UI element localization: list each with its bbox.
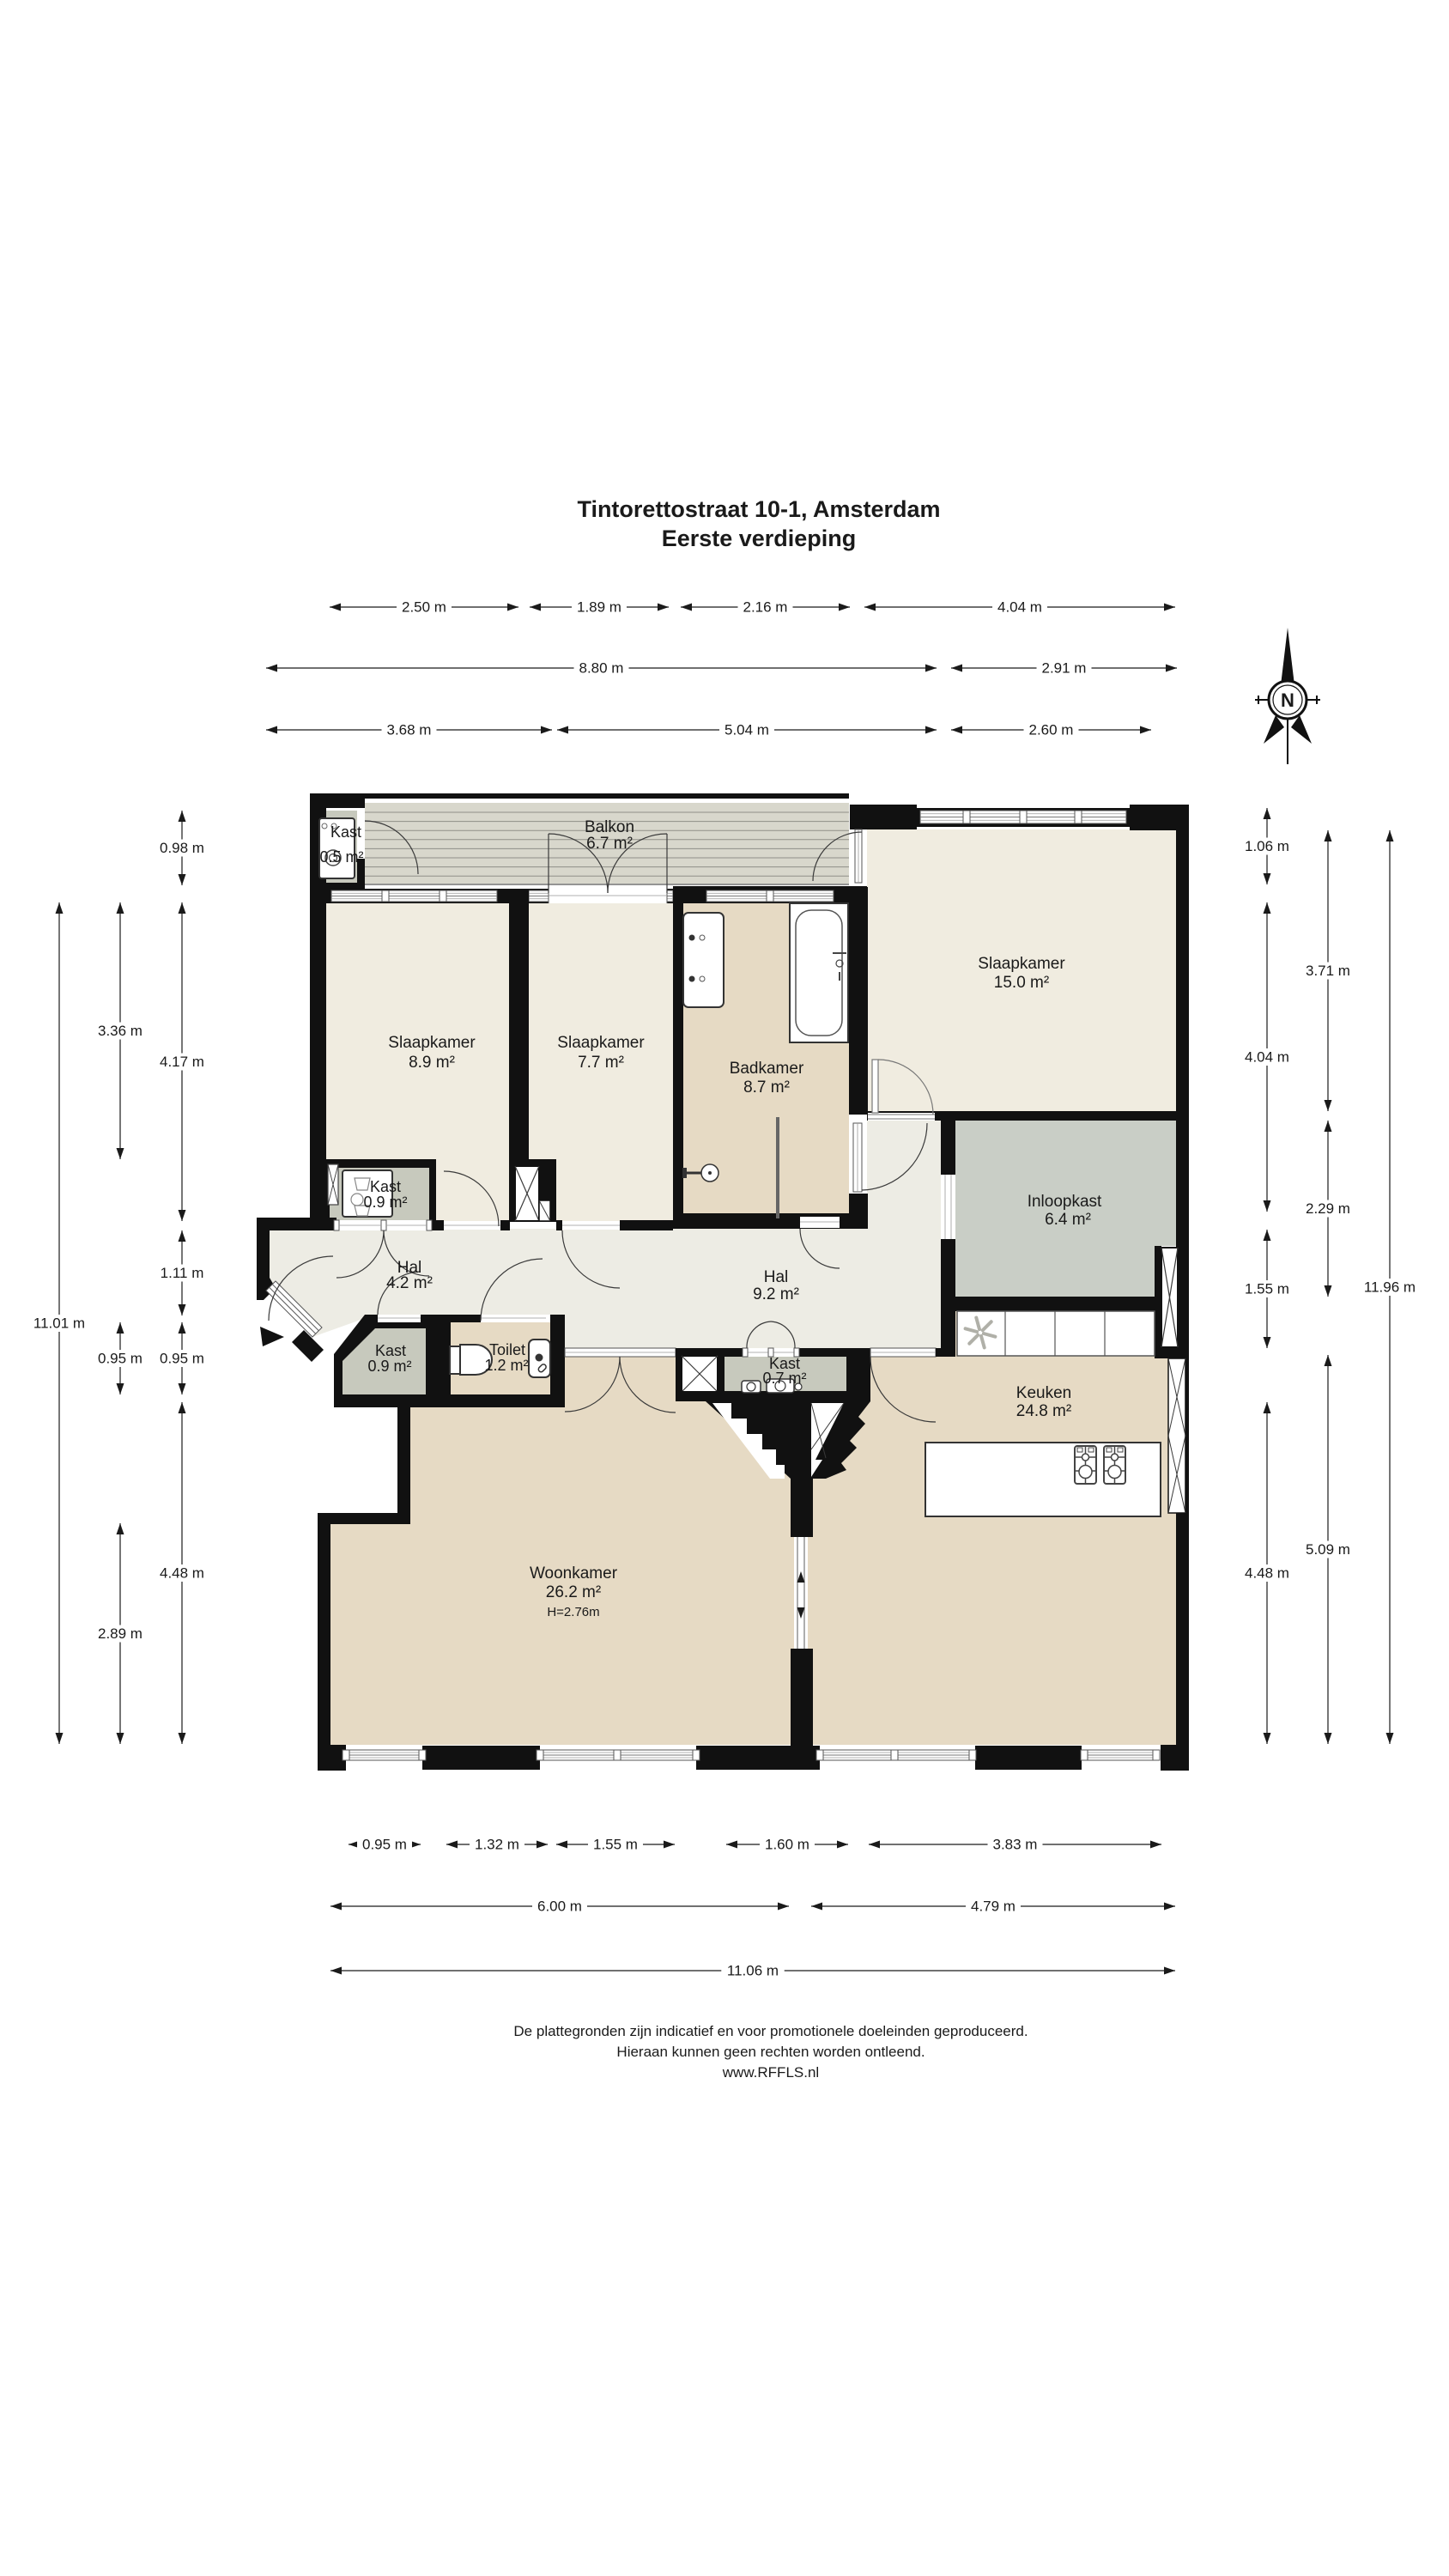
svg-text:0.98 m: 0.98 m (160, 840, 204, 856)
svg-text:www.RFFLS.nl: www.RFFLS.nl (722, 2064, 819, 2081)
svg-text:4.48 m: 4.48 m (160, 1565, 204, 1582)
svg-text:0.9 m²: 0.9 m² (363, 1194, 407, 1211)
svg-text:6.00 m: 6.00 m (537, 1899, 582, 1915)
svg-text:Slaapkamer: Slaapkamer (388, 1034, 476, 1052)
svg-text:0.7 m²: 0.7 m² (762, 1370, 806, 1387)
svg-text:Hal: Hal (764, 1268, 789, 1286)
svg-text:3.36 m: 3.36 m (98, 1023, 142, 1039)
svg-text:4.17 m: 4.17 m (160, 1054, 204, 1070)
svg-text:2.16 m: 2.16 m (743, 599, 788, 616)
svg-text:1.89 m: 1.89 m (577, 599, 621, 616)
svg-text:2.91 m: 2.91 m (1042, 660, 1087, 677)
svg-text:8.9 m²: 8.9 m² (409, 1054, 455, 1072)
svg-text:1.60 m: 1.60 m (765, 1837, 809, 1853)
svg-text:0.95 m: 0.95 m (160, 1351, 204, 1367)
svg-text:9.2 m²: 9.2 m² (753, 1285, 799, 1303)
svg-text:6.4 m²: 6.4 m² (1045, 1211, 1091, 1229)
svg-text:Kast: Kast (375, 1342, 406, 1359)
svg-text:5.04 m: 5.04 m (724, 722, 769, 738)
svg-text:Woonkamer: Woonkamer (530, 1564, 618, 1583)
svg-text:11.96 m: 11.96 m (1364, 1279, 1416, 1296)
svg-text:24.8 m²: 24.8 m² (1016, 1402, 1071, 1420)
svg-text:1.11 m: 1.11 m (161, 1265, 204, 1281)
svg-text:0.95 m: 0.95 m (362, 1837, 407, 1853)
svg-text:5.09 m: 5.09 m (1306, 1541, 1350, 1558)
svg-text:1.55 m: 1.55 m (1245, 1281, 1289, 1297)
svg-text:Kast: Kast (370, 1178, 401, 1195)
svg-text:Inloopkast: Inloopkast (1028, 1193, 1102, 1211)
svg-text:Kast: Kast (330, 823, 361, 841)
svg-text:Eerste verdieping: Eerste verdieping (662, 526, 857, 551)
svg-text:3.68 m: 3.68 m (387, 722, 432, 738)
svg-text:26.2 m²: 26.2 m² (546, 1583, 601, 1601)
svg-text:4.2 m²: 4.2 m² (386, 1274, 433, 1292)
svg-text:4.48 m: 4.48 m (1245, 1565, 1289, 1582)
svg-text:De plattegronden zijn indicati: De plattegronden zijn indicatief en voor… (513, 2023, 1028, 2039)
svg-text:H=2.76m: H=2.76m (547, 1605, 599, 1619)
svg-text:4.79 m: 4.79 m (971, 1899, 1016, 1915)
svg-text:3.71 m: 3.71 m (1306, 963, 1350, 979)
svg-text:Balkon: Balkon (585, 818, 634, 836)
svg-text:8.80 m: 8.80 m (579, 660, 624, 677)
svg-text:1.55 m: 1.55 m (593, 1837, 638, 1853)
svg-text:0.5 m²: 0.5 m² (319, 848, 363, 866)
svg-text:3.83 m: 3.83 m (993, 1837, 1038, 1853)
svg-text:Keuken: Keuken (1016, 1384, 1071, 1402)
svg-text:8.7 m²: 8.7 m² (743, 1078, 790, 1097)
svg-text:15.0 m²: 15.0 m² (994, 974, 1049, 992)
svg-text:0.95 m: 0.95 m (98, 1351, 142, 1367)
svg-text:7.7 m²: 7.7 m² (578, 1054, 624, 1072)
svg-text:Tintorettostraat 10-1, Amsterd: Tintorettostraat 10-1, Amsterdam (577, 496, 940, 522)
svg-text:Badkamer: Badkamer (730, 1060, 804, 1078)
svg-text:Toilet: Toilet (489, 1341, 525, 1358)
svg-text:1.32 m: 1.32 m (475, 1837, 519, 1853)
svg-text:2.50 m: 2.50 m (402, 599, 446, 616)
svg-text:1.2 m²: 1.2 m² (484, 1357, 528, 1374)
svg-text:N: N (1281, 690, 1294, 711)
svg-text:4.04 m: 4.04 m (1245, 1049, 1289, 1066)
svg-text:11.06 m: 11.06 m (727, 1963, 779, 1979)
svg-text:0.9 m²: 0.9 m² (367, 1358, 411, 1375)
svg-text:1.06 m: 1.06 m (1245, 838, 1289, 854)
svg-text:Slaapkamer: Slaapkamer (557, 1034, 645, 1052)
svg-text:6.7 m²: 6.7 m² (586, 835, 633, 853)
svg-text:2.60 m: 2.60 m (1029, 722, 1074, 738)
svg-text:2.29 m: 2.29 m (1306, 1200, 1350, 1217)
svg-text:11.01 m: 11.01 m (33, 1315, 85, 1332)
svg-text:Hieraan kunnen geen rechten wo: Hieraan kunnen geen rechten worden ontle… (616, 2044, 925, 2060)
svg-text:4.04 m: 4.04 m (997, 599, 1042, 616)
svg-text:Slaapkamer: Slaapkamer (978, 955, 1065, 973)
svg-text:2.89 m: 2.89 m (98, 1625, 142, 1642)
